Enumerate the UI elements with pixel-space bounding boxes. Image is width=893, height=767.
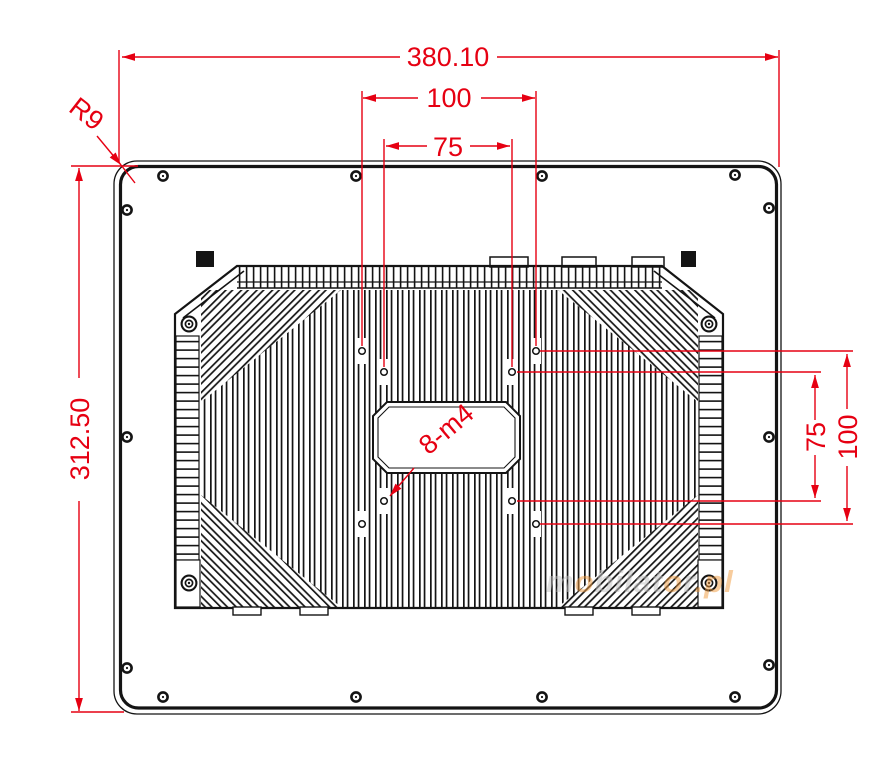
overall-height-label: 312.50	[65, 398, 95, 481]
heatsink-top-comb	[237, 267, 662, 288]
screw	[764, 432, 773, 441]
vesa-hole-75	[509, 369, 516, 376]
watermark-part: .pl	[695, 564, 735, 599]
vesa-hole-100	[533, 521, 540, 528]
vesa-height-100-label: 100	[833, 414, 863, 459]
foot-tab	[300, 607, 328, 615]
vesa-hole-100	[533, 348, 540, 355]
heatsink-left-slats	[176, 336, 199, 560]
heatsink-corner-screw	[702, 317, 717, 332]
vesa-hole-75	[381, 498, 388, 505]
screw	[158, 171, 167, 180]
vesa-height-75-label: 75	[801, 422, 831, 452]
screw	[764, 203, 773, 212]
screw	[537, 692, 546, 701]
vesa-width-75-label: 75	[433, 132, 463, 162]
screw	[764, 660, 773, 669]
heatsink-corner-screw	[182, 576, 197, 591]
screw	[158, 692, 167, 701]
screw	[122, 663, 131, 672]
watermark-part: o	[663, 564, 683, 599]
screw	[730, 692, 739, 701]
antenna-tab-left	[196, 251, 214, 267]
watermark-part: o	[575, 564, 595, 599]
vesa-hole-75	[381, 369, 388, 376]
foot-tab	[632, 607, 660, 615]
screw	[351, 692, 360, 701]
vesa-hole-100	[359, 521, 366, 528]
watermark-part: m	[546, 564, 575, 599]
watermark-part: bilat	[595, 564, 664, 599]
screw	[537, 171, 546, 180]
foot-tab	[233, 607, 261, 615]
heatsink-right-slats	[699, 336, 722, 560]
overall-width-label: 380.10	[407, 42, 490, 72]
dimension-drawing-canvas: mobilator.pl 380.10 100 75	[0, 0, 893, 767]
screw	[122, 205, 131, 214]
heatsink-corner-screw	[182, 317, 197, 332]
vesa-hole-100	[359, 348, 366, 355]
vesa-width-100-label: 100	[426, 83, 471, 113]
watermark-logo: mobilator.pl	[546, 564, 734, 599]
screw	[122, 432, 131, 441]
screw	[351, 171, 360, 180]
screw	[730, 170, 739, 179]
foot-tab	[565, 607, 593, 615]
antenna-tab-right	[681, 251, 696, 267]
vesa-hole-75	[509, 498, 516, 505]
